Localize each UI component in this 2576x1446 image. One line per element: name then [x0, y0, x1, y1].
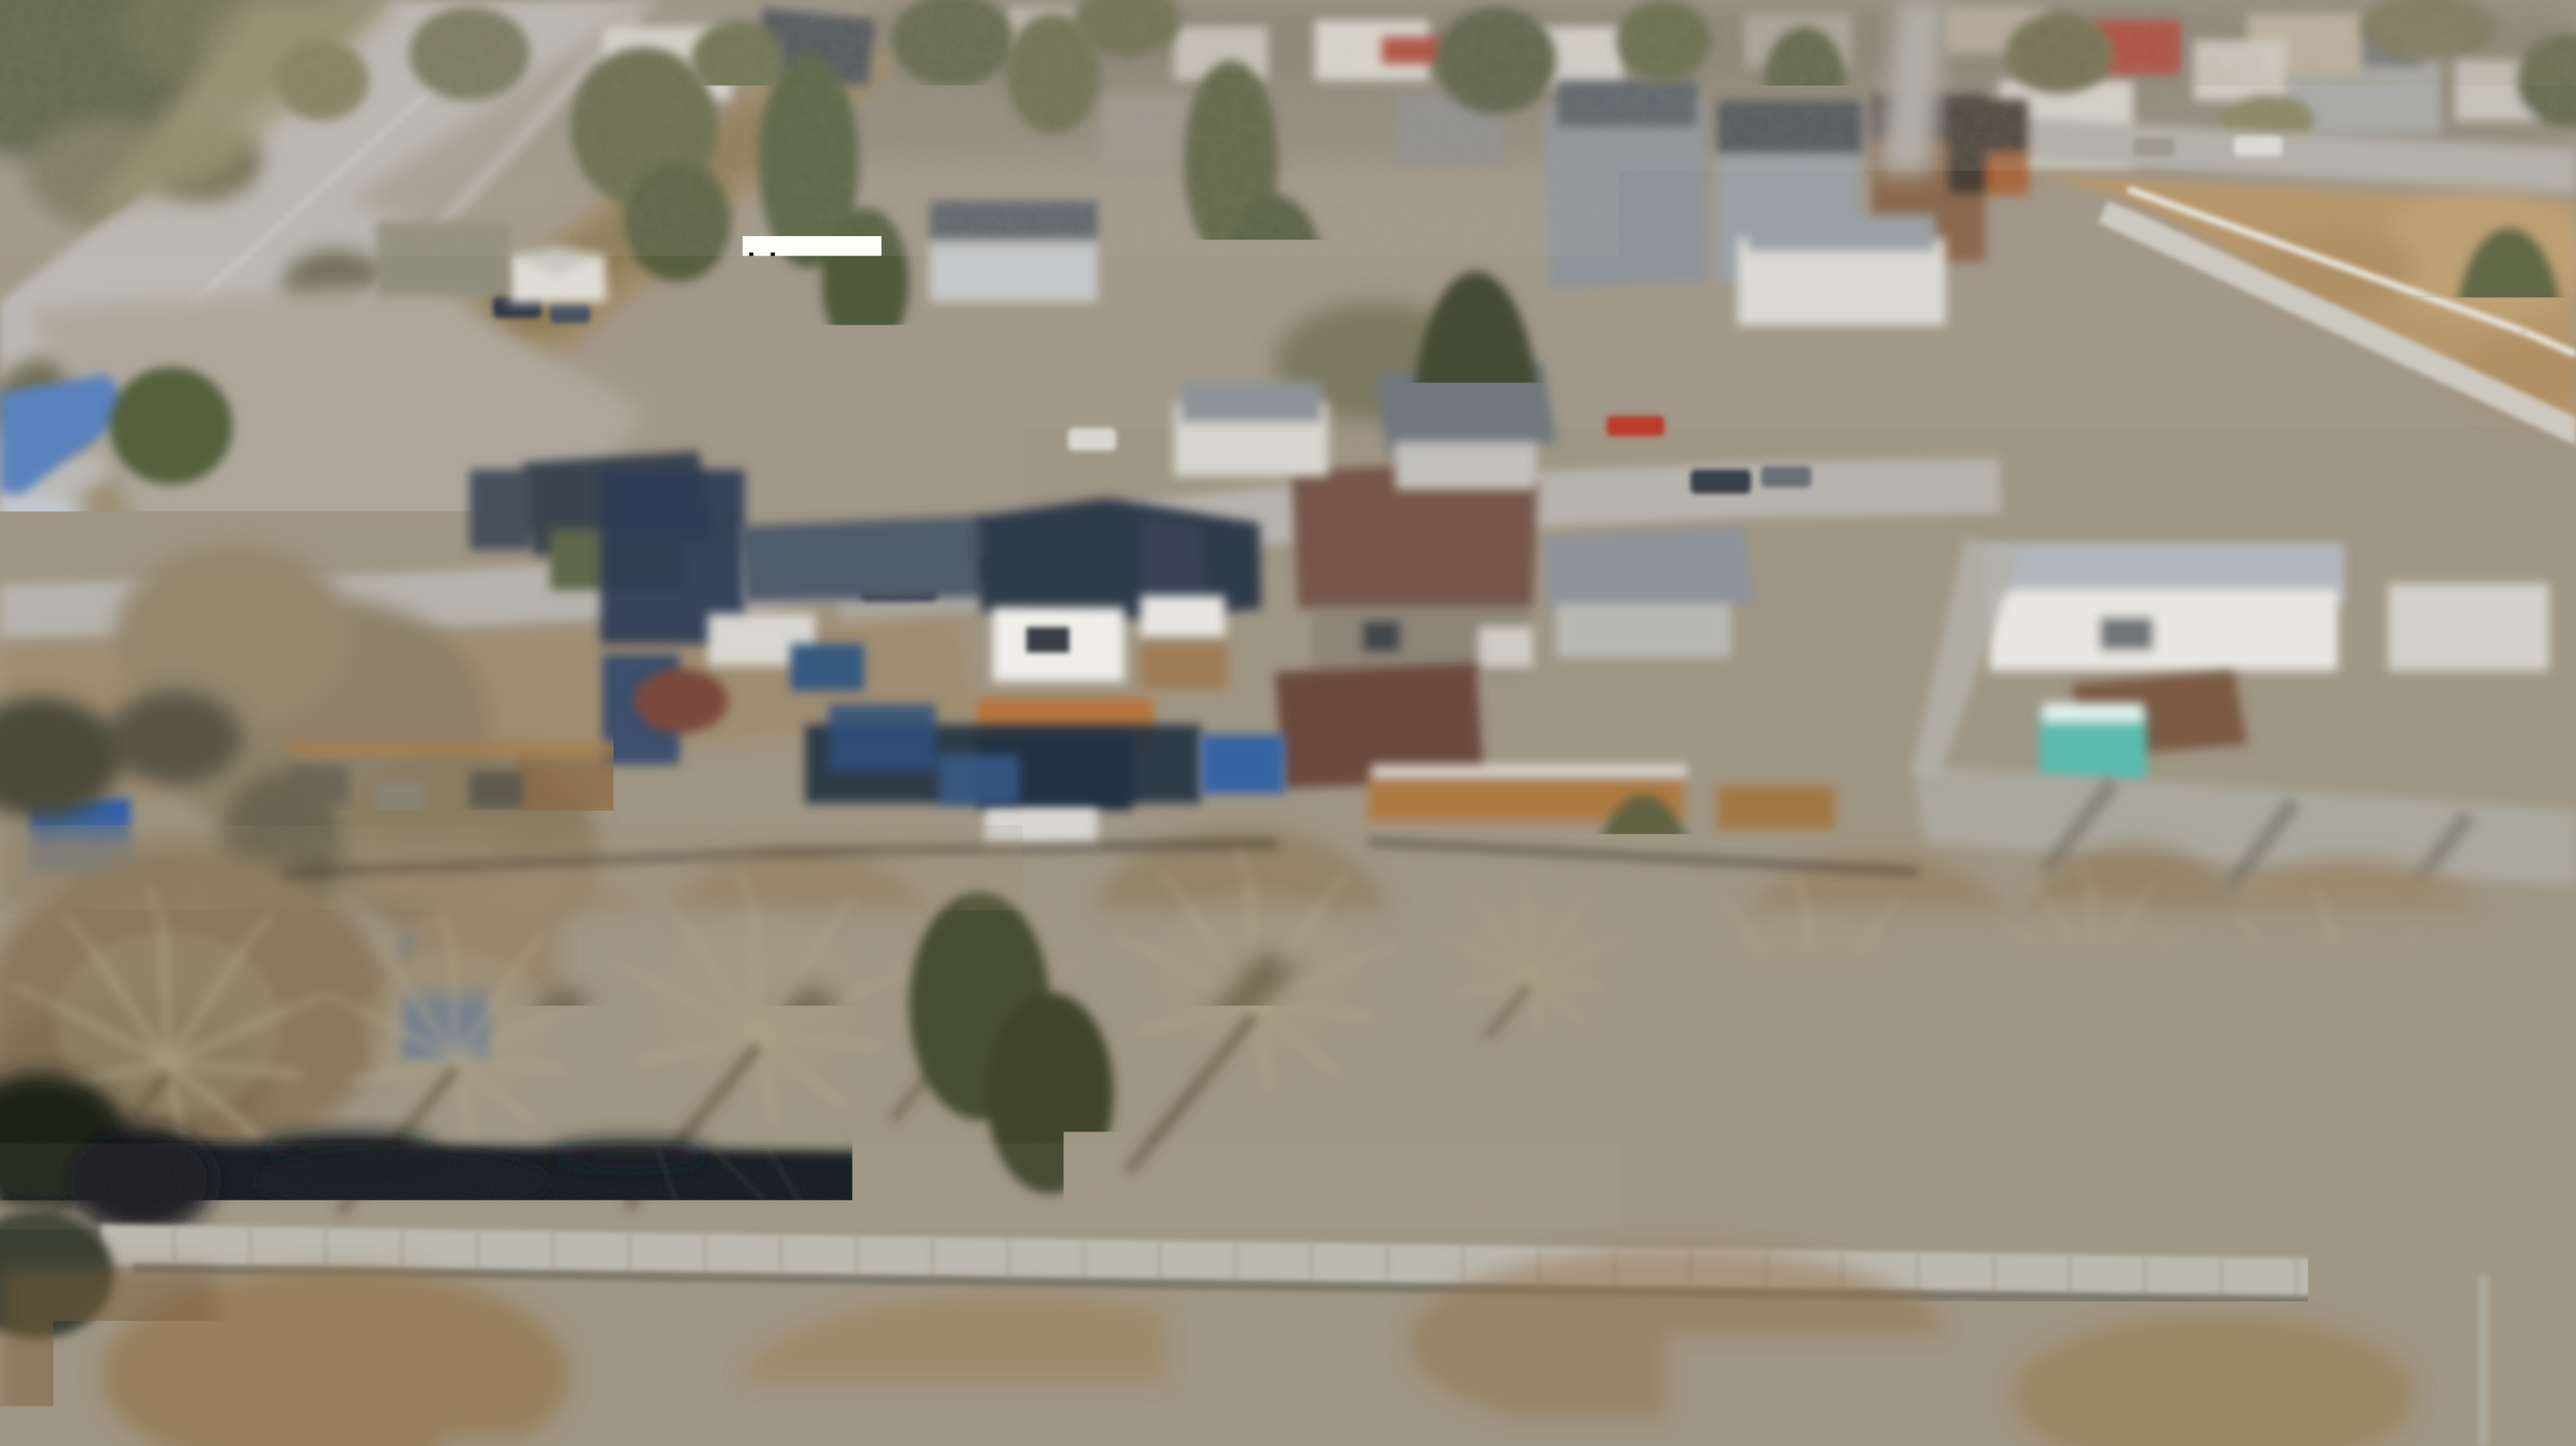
svg-text:House: House: [745, 243, 879, 294]
svg-text:Walking path to Marda Loop: Walking path to Marda Loop: [1421, 661, 1998, 713]
svg-text:Green Space: Green Space: [497, 718, 770, 770]
